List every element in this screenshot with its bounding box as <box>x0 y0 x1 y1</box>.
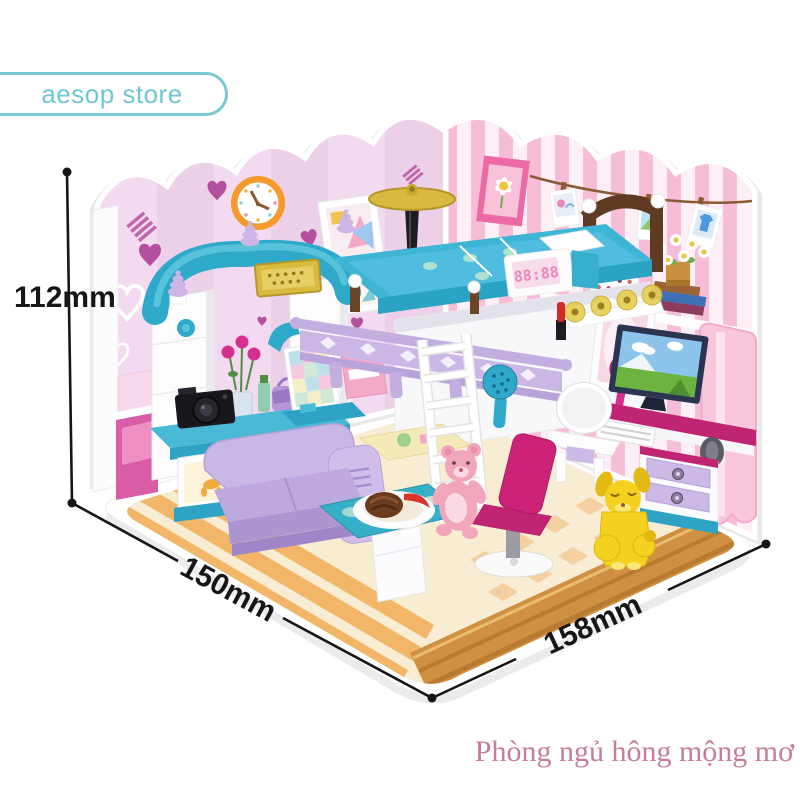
bottle-cap <box>260 375 268 383</box>
green-bottle <box>258 382 270 412</box>
product-image: Calendar <box>0 0 800 800</box>
wall-clock <box>231 176 285 230</box>
store-badge: aesop store <box>0 72 228 116</box>
desk-drawers <box>640 446 718 534</box>
gold-sign <box>255 259 322 296</box>
height-dimension-label: 112mm <box>14 281 116 314</box>
product-screenshot: Calendar <box>0 0 800 800</box>
lipstick <box>556 302 566 340</box>
store-badge-label: aesop store <box>41 79 182 110</box>
product-caption: Phòng ngủ hông mộng mơ <box>475 735 794 769</box>
flower-picture <box>476 155 530 226</box>
yellow-puppy <box>592 465 656 570</box>
chocolate-donut <box>365 492 403 518</box>
